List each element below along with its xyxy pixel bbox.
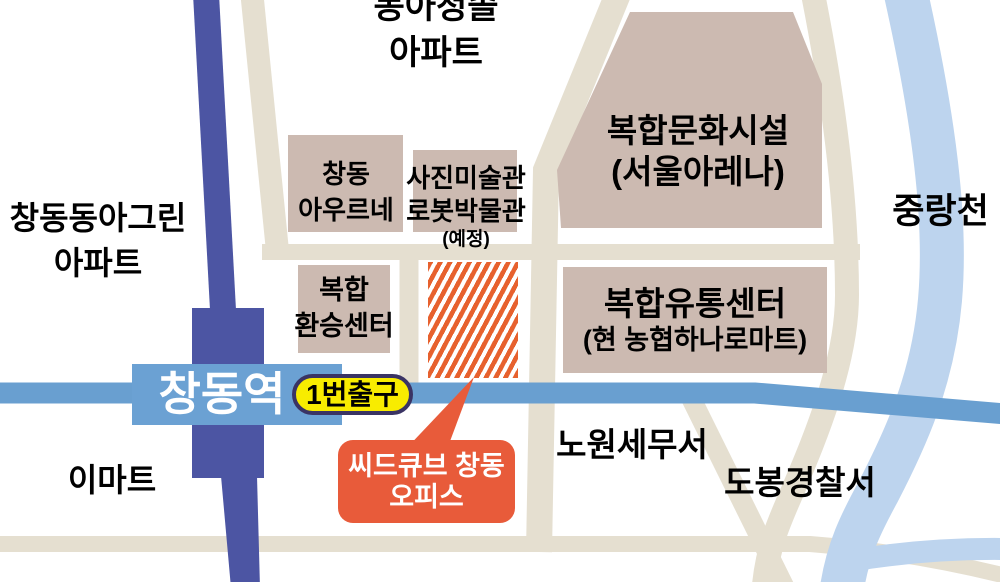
label-line: 사진미술관 — [396, 162, 536, 195]
label-distribution-center: 복합유통센터 (현 농협하나로마트) — [563, 285, 827, 359]
label-line: 동아청솔 — [330, 0, 542, 30]
label-transfer-center: 복합 환승센터 — [290, 272, 398, 344]
label-dobong-police: 도봉경찰서 — [710, 463, 890, 503]
label-line-planned: (예정) — [396, 228, 536, 252]
label-line: 환승센터 — [290, 308, 398, 344]
seedcube-site-hatch — [428, 262, 518, 378]
label-photo-museum-robot-museum: 사진미술관 로봇박물관 (예정) — [396, 162, 536, 252]
label-line: 복합유통센터 — [563, 285, 827, 322]
railway-line-upper — [193, 0, 236, 310]
label-line: 아파트 — [0, 241, 198, 286]
label-nowon-tax-office: 노원세무서 — [545, 425, 719, 465]
label-jungnangcheon: 중랑천 — [868, 191, 1000, 233]
label-changdong-donga-green-apt: 창동동아그린 아파트 — [0, 196, 198, 286]
label-line: (현 농협하나로마트) — [563, 322, 827, 359]
callout-line: 씨드큐브 창동 — [338, 451, 515, 482]
label-line: 아파트 — [330, 30, 542, 76]
label-line: 창동동아그린 — [0, 196, 198, 241]
label-line: 창동 — [288, 156, 404, 192]
callout-line: 오피스 — [338, 482, 515, 513]
label-line: 복합문화시설 — [560, 110, 836, 151]
label-seoul-arena: 복합문화시설 (서울아레나) — [560, 110, 836, 192]
road-northwest-diagonal — [252, 0, 278, 256]
label-line: 복합 — [290, 272, 398, 308]
changdong-area-map: 동아청솔 아파트 창동동아그린 아파트 중랑천 창동 아우르네 사진미술관 로봇… — [0, 0, 1000, 582]
exit1-badge-text: 1번출구 — [306, 379, 399, 410]
label-emart: 이마트 — [32, 461, 192, 499]
label-changdong-station: 창동역 — [132, 371, 312, 417]
label-changdong-auruene: 창동 아우르네 — [288, 156, 404, 228]
stream-branch — [855, 549, 1000, 560]
label-line: (서울아레나) — [560, 151, 836, 192]
seedcube-callout: 씨드큐브 창동 오피스 — [338, 440, 515, 523]
label-line: 아우르네 — [288, 192, 404, 228]
label-donga-cheongsol-apt: 동아청솔 아파트 — [330, 0, 542, 76]
label-line: 로봇박물관 — [396, 195, 536, 228]
exit1-badge: 1번출구 — [292, 374, 413, 415]
railway-line-lower — [221, 476, 260, 582]
